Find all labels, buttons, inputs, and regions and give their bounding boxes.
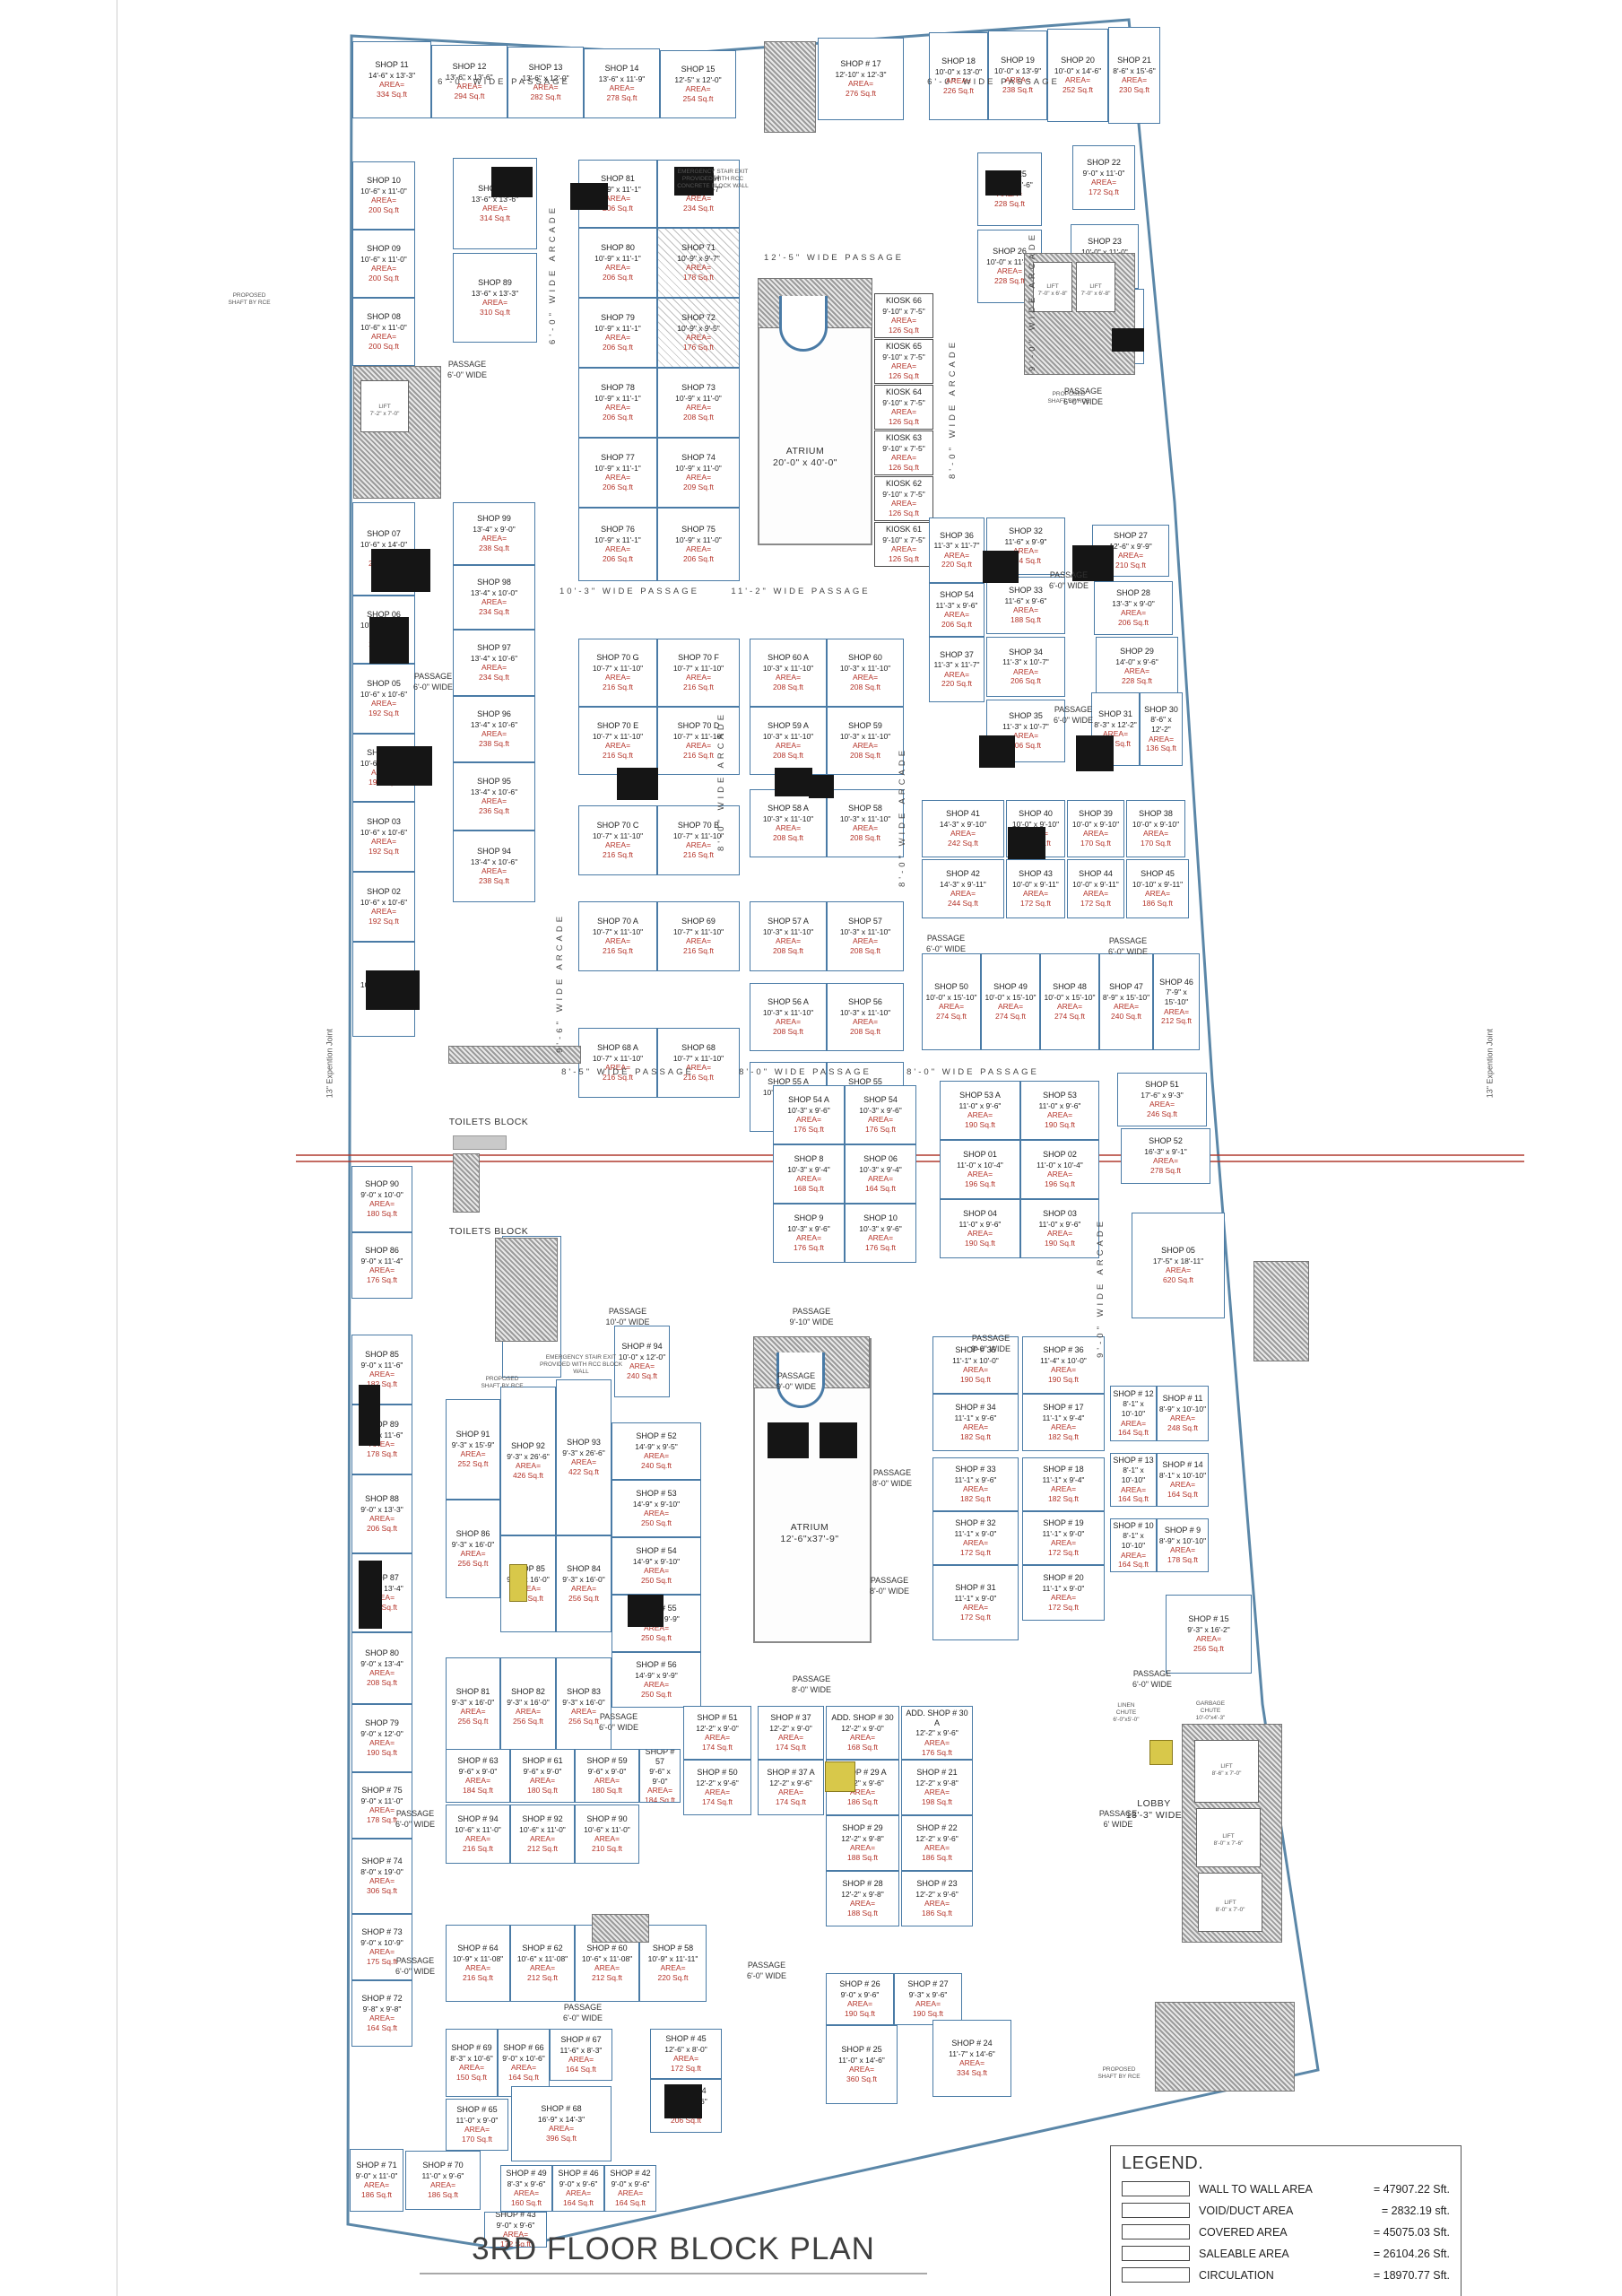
shop-number: SHOP 80 <box>601 243 635 253</box>
shop-cell: SHOP 10 10'-3" x 9'-6" AREA= 176 Sq.ft <box>845 1204 916 1263</box>
shop-number: SHOP 80 <box>365 1648 399 1658</box>
shop-dimensions: 11'-7" x 14'-6" <box>949 2049 995 2059</box>
shop-number: SHOP # 45 <box>665 2034 706 2044</box>
shop-cell: SHOP 78 10'-9" x 11'-1" AREA= 206 Sq.ft <box>578 368 657 438</box>
shop-area-value: 172 Sq.ft <box>960 1613 991 1622</box>
shop-area-value: 174 Sq.ft <box>776 1743 806 1752</box>
shop-cell: SHOP 76 10'-9" x 11'-1" AREA= 206 Sq.ft <box>578 508 657 581</box>
shop-area-label: AREA= <box>853 936 878 946</box>
shop-number: SHOP 34 <box>1009 648 1043 657</box>
shop-number: SHOP # 61 <box>522 1756 562 1766</box>
shop-number: SHOP 53 <box>1043 1091 1077 1100</box>
shop-area-label: AREA= <box>369 1514 395 1524</box>
shop-number: SHOP 83 <box>567 1687 601 1697</box>
structure-block <box>371 549 430 592</box>
structure-block <box>825 1761 855 1792</box>
shop-area-value: 182 Sq.ft <box>960 1432 991 1442</box>
shop-dimensions: 14'-3" x 9'-10" <box>940 820 986 830</box>
shop-cell: SHOP 84 9'-3" x 16'-0" AREA= 256 Sq.ft <box>556 1535 612 1632</box>
shop-area-value: 184 Sq.ft <box>645 1796 675 1803</box>
legend-row: CIRCULATION = 18970.77 Sft. <box>1122 2267 1450 2283</box>
shop-number: SHOP # 15 <box>1188 1614 1228 1624</box>
shop-area-label: AREA= <box>605 544 630 554</box>
shop-area-label: AREA= <box>571 1457 596 1467</box>
shop-dimensions: 13'-6" x 11'-9" <box>599 74 646 84</box>
shop-area-value: 208 Sq.ft <box>773 833 803 843</box>
shop-area-label: AREA= <box>1121 1485 1146 1495</box>
shop-area-value: 174 Sq.ft <box>702 1743 733 1752</box>
shop-area-value: 228 Sq.ft <box>1122 676 1152 686</box>
structure-block <box>617 768 658 800</box>
shop-area-label: AREA= <box>1170 1480 1195 1490</box>
shop-number: SHOP 39 <box>1079 809 1113 819</box>
shop-area-label: AREA= <box>685 84 710 94</box>
shop-area-value: 170 Sq.ft <box>1141 839 1171 848</box>
shop-number: SHOP 54 A <box>788 1095 829 1105</box>
shop-area-label: AREA= <box>605 333 630 343</box>
shop-number: SHOP 74 <box>681 453 716 463</box>
shop-dimensions: 10'-0" x 14'-6" <box>1054 66 1101 76</box>
shop-cell: SHOP 75 10'-9" x 11'-0" AREA= 206 Sq.ft <box>657 508 740 581</box>
passage-label: PASSAGE 6'-0" WIDE <box>747 1951 786 1981</box>
shop-dimensions: 12'-2" x 9'-6" <box>915 1834 958 1844</box>
shop-area-value: 172 Sq.ft <box>960 1548 991 1558</box>
shop-area-label: AREA= <box>891 499 916 509</box>
shop-number: SHOP 53 A <box>959 1091 1001 1100</box>
shop-dimensions: 10'-6" x 14'-0" <box>360 540 407 550</box>
shop-number: SHOP # 14 <box>1162 1460 1202 1470</box>
shop-area-value: 208 Sq.ft <box>773 683 803 692</box>
shop-number: SHOP 57 A <box>768 917 809 926</box>
shop-dimensions: 8'-1" x 10'-10" <box>1112 1399 1155 1418</box>
shop-dimensions: 11'-1" x 10'-0" <box>952 1356 999 1366</box>
shop-cell: SHOP 02 11'-0" x 10'-4" AREA= 196 Sq.ft <box>1020 1140 1099 1199</box>
shop-area-value: 209 Sq.ft <box>683 483 714 492</box>
shop-area-value: 164 Sq.ft <box>566 2065 596 2074</box>
shop-area-label: AREA= <box>1143 829 1168 839</box>
shop-dimensions: 9'-0" x 13'-4" <box>360 1659 403 1669</box>
shop-cell: SHOP 77 10'-9" x 11'-1" AREA= 206 Sq.ft <box>578 438 657 508</box>
shop-number: SHOP # 34 <box>955 1403 995 1413</box>
shop-number: SHOP 91 <box>456 1430 490 1439</box>
shop-area-value: 172 Sq.ft <box>1048 1603 1079 1613</box>
shop-dimensions: 11'-3" x 9'-6" <box>936 601 978 611</box>
shop-number: KIOSK 63 <box>886 433 922 443</box>
shop-area-label: AREA= <box>891 361 916 371</box>
shop-dimensions: 14'-9" x 9'-10" <box>633 1500 680 1509</box>
shop-cell: SHOP 99 13'-4" x 9'-0" AREA= 238 Sq.ft <box>453 502 535 565</box>
shop-cell: SHOP # 53 14'-9" x 9'-10" AREA= 250 Sq.f… <box>612 1480 701 1537</box>
shop-number: SHOP 82 <box>511 1687 545 1697</box>
shop-number: SHOP 52 <box>1149 1136 1183 1146</box>
shop-number: SHOP 70 G <box>596 653 638 663</box>
shop-dimensions: 9'-0" x 10'-6" <box>502 2054 545 2064</box>
shop-dimensions: 12'-2" x 9'-6" <box>769 1779 812 1788</box>
shop-number: SHOP 27 <box>1114 531 1148 541</box>
shop-area-label: AREA= <box>371 837 396 847</box>
shop-cell: SHOP # 65 11'-0" x 9'-0" AREA= 170 Sq.ft <box>446 2099 508 2151</box>
shop-dimensions: 10'-7" x 11'-10" <box>593 831 643 841</box>
shop-dimensions: 11'-1" x 9'-4" <box>1043 1475 1085 1485</box>
note-label: LIFT 7'-0" x 6'-8" <box>1081 276 1111 298</box>
shop-area-value: 168 Sq.ft <box>794 1184 824 1194</box>
shop-dimensions: 12'-10" x 12'-3" <box>835 70 886 80</box>
shop-cell: SHOP 58 A 10'-3" x 11'-10" AREA= 208 Sq.… <box>750 789 827 857</box>
shop-dimensions: 10'-3" x 9'-6" <box>859 1224 902 1234</box>
shop-number: SHOP # 29 <box>842 1823 882 1833</box>
shop-area-label: AREA= <box>1047 1229 1072 1239</box>
shop-cell: SHOP # 62 10'-6" x 11'-08" AREA= 212 Sq.… <box>510 1925 575 2002</box>
shop-area-label: AREA= <box>460 1549 485 1559</box>
shop-cell: SHOP 57 10'-3" x 11'-10" AREA= 208 Sq.ft <box>827 901 904 971</box>
shop-dimensions: 9'-8" x 9'-8" <box>363 2005 402 2014</box>
shop-dimensions: 9'-3" x 15'-9" <box>452 1440 495 1450</box>
shop-area-label: AREA= <box>481 597 507 607</box>
shop-number: SHOP # 49 <box>506 2169 546 2179</box>
shop-cell: SHOP # 49 8'-3" x 9'-6" AREA= 160 Sq.ft <box>500 2165 552 2212</box>
shop-area-value: 190 Sq.ft <box>1048 1375 1079 1385</box>
shop-cell: SHOP # 29 12'-2" x 9'-8" AREA= 188 Sq.ft <box>826 1815 899 1871</box>
shop-area-value: 248 Sq.ft <box>1167 1423 1198 1433</box>
shop-area-label: AREA= <box>1065 75 1090 85</box>
legend-label: VOID/DUCT AREA <box>1199 2205 1382 2217</box>
shop-cell: SHOP 9 10'-3" x 9'-6" AREA= 176 Sq.ft <box>773 1204 845 1263</box>
shop-dimensions: 17'-6" x 9'-3" <box>1141 1091 1184 1100</box>
shop-cell: SHOP # 71 9'-0" x 11'-0" AREA= 186 Sq.ft <box>350 2149 403 2212</box>
legend-label: WALL TO WALL AREA <box>1199 2183 1374 2196</box>
shop-number: SHOP 70 D <box>678 721 720 731</box>
structure-block <box>768 1422 809 1458</box>
shop-area-label: AREA= <box>1145 889 1170 899</box>
shop-number: SHOP # 42 <box>610 2169 650 2179</box>
shop-area-label: AREA= <box>369 1265 395 1275</box>
shop-area-label: AREA= <box>629 1361 655 1371</box>
shop-area-value: 216 Sq.ft <box>603 751 633 761</box>
structure-block <box>775 768 812 796</box>
shop-cell: SHOP 88 9'-0" x 13'-3" AREA= 206 Sq.ft <box>351 1474 412 1553</box>
shop-number: SHOP # 17 <box>840 59 880 69</box>
shop-number: SHOP # 46 <box>558 2169 598 2179</box>
shop-cell: SHOP # 92 10'-6" x 11'-0" AREA= 212 Sq.f… <box>510 1805 575 1864</box>
shop-area-value: 200 Sq.ft <box>369 205 399 215</box>
shop-dimensions: 10'-9" x 11'-1" <box>594 535 641 545</box>
shop-area-value: 208 Sq.ft <box>850 751 880 761</box>
shop-area-value: 314 Sq.ft <box>480 213 510 223</box>
shop-cell: SHOP 69 10'-7" x 11'-10" AREA= 216 Sq.ft <box>657 901 740 971</box>
arcade-label: 9'-0" WIDE ARCADE <box>1096 1218 1106 1358</box>
shop-area-value: 180 Sq.ft <box>527 1786 558 1796</box>
structure-block <box>570 183 608 210</box>
shop-area-label: AREA= <box>605 741 630 751</box>
shop-number: KIOSK 61 <box>886 525 922 535</box>
shop-dimensions: 17'-5" x 18'-11" <box>1153 1257 1203 1266</box>
shop-number: SHOP 15 <box>681 65 716 74</box>
shop-cell: SHOP # 56 14'-9" x 9'-9" AREA= 250 Sq.ft <box>612 1652 701 1708</box>
shop-area-value: 186 Sq.ft <box>428 2190 458 2200</box>
shop-area-label: AREA= <box>673 2054 698 2064</box>
shop-dimensions: 9'-0" x 11'-0" <box>1083 169 1125 178</box>
shop-number: SHOP # 27 <box>907 1979 948 1989</box>
structure-block <box>1008 827 1045 859</box>
shop-number: SHOP 05 <box>1161 1246 1195 1256</box>
shop-number: SHOP 06 <box>863 1154 898 1164</box>
shop-cell: SHOP 43 10'-0" x 9'-11" AREA= 172 Sq.ft <box>1006 859 1065 918</box>
shop-number: SHOP # 51 <box>697 1713 737 1723</box>
note-label: LIFT 8'-6" x 7'-0" <box>1212 1756 1242 1778</box>
shop-area-value: 210 Sq.ft <box>592 1844 622 1854</box>
shop-area-value: 208 Sq.ft <box>850 946 880 956</box>
shop-dimensions: 13'-6" x 13'-3" <box>472 289 518 299</box>
shop-dimensions: 9'-3" x 16'-0" <box>452 1698 495 1708</box>
passage-label: PASSAGE 6'-0" WIDE <box>395 1946 435 1977</box>
shop-area-value: 246 Sq.ft <box>1147 1109 1177 1119</box>
shop-number: SHOP # 67 <box>560 2035 601 2045</box>
shop-area-label: AREA= <box>850 1899 875 1909</box>
shop-cell: SHOP 28 13'-3" x 9'-0" AREA= 206 Sq.ft <box>1094 581 1173 635</box>
shop-area-label: AREA= <box>464 2125 490 2135</box>
shop-area-label: AREA= <box>566 2188 591 2198</box>
sheet-edge-line <box>117 0 117 2296</box>
shop-area-label: AREA= <box>778 1787 803 1797</box>
shop-cell: SHOP 59 A 10'-3" x 11'-10" AREA= 208 Sq.… <box>750 707 827 775</box>
shop-cell: SHOP # 20 11'-1" x 9'-0" AREA= 172 Sq.ft <box>1022 1565 1105 1621</box>
shop-area-label: AREA= <box>850 1733 875 1743</box>
passage-label: PASSAGE 6'-0" WIDE <box>395 1799 435 1830</box>
shop-cell: SHOP 70 A 10'-7" x 11'-10" AREA= 216 Sq.… <box>578 901 657 971</box>
passage-label: 12'-5" WIDE PASSAGE <box>764 253 904 264</box>
shop-cell: SHOP 09 10'-6" x 11'-0" AREA= 200 Sq.ft <box>352 230 415 298</box>
passage-label: PASSAGE 8'-0" WIDE <box>870 1566 909 1596</box>
shop-area-label: AREA= <box>647 1786 672 1796</box>
shop-cell: SHOP 71 10'-9" x 9'-7" AREA= 178 Sq.ft <box>657 228 740 298</box>
shop-area-value: 176 Sq.ft <box>865 1125 896 1135</box>
shop-number: SHOP 60 <box>848 653 882 663</box>
shop-area-value: 126 Sq.ft <box>889 417 919 427</box>
shop-dimensions: 13'-3" x 9'-0" <box>1112 599 1155 609</box>
shop-area-label: AREA= <box>549 2124 574 2134</box>
shop-area-value: 186 Sq.ft <box>361 2190 392 2200</box>
shop-cell: SHOP 39 10'-0" x 9'-10" AREA= 170 Sq.ft <box>1067 800 1124 857</box>
shop-dimensions: 8'-1" x 10'-10" <box>1159 1471 1206 1481</box>
shop-area-label: AREA= <box>605 936 630 946</box>
shop-number: SHOP # 52 <box>636 1431 676 1441</box>
shop-area-label: AREA= <box>868 1233 893 1243</box>
shop-dimensions: 12'-2" x 9'-8" <box>841 1834 884 1844</box>
shop-area-value: 200 Sq.ft <box>369 342 399 352</box>
passage-label: PASSAGE 6'-0" WIDE <box>1108 926 1148 957</box>
shop-area-value: 136 Sq.ft <box>1146 744 1176 753</box>
shop-number: SHOP # 75 <box>361 1786 402 1796</box>
shop-dimensions: 13'-4" x 10'-6" <box>471 654 517 664</box>
shop-area-value: 250 Sq.ft <box>641 1576 672 1586</box>
shop-number: SHOP 14 <box>605 64 639 74</box>
shop-number: SHOP 59 <box>848 721 882 731</box>
shop-area-label: AREA= <box>950 829 976 839</box>
shop-cell: SHOP 14 13'-6" x 11'-9" AREA= 278 Sq.ft <box>584 48 660 118</box>
shop-area-label: AREA= <box>1170 1545 1195 1555</box>
shop-area-label: AREA= <box>369 1668 395 1678</box>
structure-block <box>509 1564 527 1602</box>
shop-cell: SHOP 05 17'-5" x 18'-11" AREA= 620 Sq.ft <box>1132 1213 1225 1318</box>
shop-cell: SHOP 05 10'-6" x 10'-6" AREA= 192 Sq.ft <box>352 664 415 734</box>
shop-area-label: AREA= <box>660 1963 685 1973</box>
page-title: 3RD FLOOR BLOCK PLAN <box>420 2231 927 2274</box>
shop-cell: SHOP 95 13'-4" x 10'-6" AREA= 236 Sq.ft <box>453 762 535 831</box>
shop-cell: SHOP 36 11'-3" x 11'-7" AREA= 220 Sq.ft <box>929 517 984 583</box>
passage-label: PASSAGE 6'-0" WIDE <box>599 1702 638 1733</box>
shop-area-label: AREA= <box>853 1017 878 1027</box>
shop-dimensions: 11'-3" x 10'-7" <box>1002 657 1049 667</box>
shop-cell: SHOP 98 13'-4" x 10'-0" AREA= 234 Sq.ft <box>453 565 535 630</box>
legend-value: = 18970.77 Sft. <box>1374 2269 1450 2282</box>
shop-cell: SHOP 08 10'-6" x 11'-0" AREA= 200 Sq.ft <box>352 298 415 366</box>
shop-area-value: 190 Sq.ft <box>1045 1120 1075 1130</box>
shop-area-value: 208 Sq.ft <box>850 1027 880 1037</box>
legend-row: SALEABLE AREA = 26104.26 Sft. <box>1122 2246 1450 2261</box>
shop-area-label: AREA= <box>1023 889 1048 899</box>
shop-area-label: AREA= <box>963 1365 988 1375</box>
shop-area-label: AREA= <box>944 670 969 680</box>
shop-dimensions: 12'-2" x 9'-6" <box>915 1890 958 1900</box>
shop-area-label: AREA= <box>481 729 507 739</box>
shop-cell: SHOP 01 11'-0" x 10'-4" AREA= 196 Sq.ft <box>940 1140 1020 1199</box>
shop-area-value: 360 Sq.ft <box>846 2074 877 2084</box>
passage-label: PASSAGE 8'-0" WIDE <box>792 1665 831 1695</box>
shop-number: SHOP 79 <box>365 1718 399 1728</box>
shop-number: SHOP 35 <box>1009 711 1043 721</box>
shop-number: SHOP # 26 <box>839 1979 880 1989</box>
shop-dimensions: 11'-1" x 9'-6" <box>955 1475 997 1485</box>
shop-number: SHOP 40 <box>1019 809 1053 819</box>
shop-area-value: 206 Sq.ft <box>603 273 633 283</box>
shop-number: SHOP 03 <box>1043 1209 1077 1219</box>
shop-dimensions: 11'-0" x 10'-4" <box>1037 1161 1083 1170</box>
shop-area-label: AREA= <box>944 551 969 561</box>
shop-area-label: AREA= <box>1170 1413 1195 1423</box>
shop-number: SHOP 84 <box>567 1564 601 1574</box>
shop-cell: SHOP 90 9'-0" x 10'-0" AREA= 180 Sq.ft <box>351 1166 412 1232</box>
shop-number: SHOP 56 <box>848 997 882 1007</box>
structure-block <box>1076 735 1114 771</box>
shop-number: SHOP 49 <box>993 982 1028 992</box>
shop-number: SHOP 44 <box>1079 869 1113 879</box>
structure-block <box>359 1561 382 1629</box>
legend-label: COVERED AREA <box>1199 2226 1374 2239</box>
shop-dimensions: 10'-9" x 11'-0" <box>675 394 722 404</box>
shop-area-value: 334 Sq.ft <box>377 90 407 100</box>
shop-area-label: AREA= <box>369 1738 395 1748</box>
shop-dimensions: 10'-0" x 9'-10" <box>1132 820 1179 830</box>
shop-area-label: AREA= <box>371 196 396 205</box>
shop-number: SHOP 94 <box>477 847 511 857</box>
shop-number: SHOP 21 <box>1117 56 1151 65</box>
shop-number: SHOP 60 A <box>768 653 809 663</box>
shop-dimensions: 9'-3" x 26'-6" <box>562 1448 605 1458</box>
shop-area-label: AREA= <box>686 403 711 413</box>
structure-block <box>779 296 828 352</box>
shop-number: SHOP 88 <box>365 1494 399 1504</box>
structure-block <box>495 1238 558 1342</box>
shop-area-label: AREA= <box>465 1834 490 1844</box>
shop-area-label: AREA= <box>594 1963 620 1973</box>
structure-block <box>985 170 1021 196</box>
shop-area-value: 172 Sq.ft <box>671 2064 701 2074</box>
shop-cell: SHOP # 22 12'-2" x 9'-6" AREA= 186 Sq.ft <box>901 1815 973 1871</box>
shop-number: SHOP # 62 <box>522 1944 562 1953</box>
shop-area-value: 180 Sq.ft <box>367 1209 397 1219</box>
shop-area-value: 192 Sq.ft <box>369 917 399 926</box>
shop-cell: SHOP 06 10'-3" x 9'-4" AREA= 164 Sq.ft <box>845 1144 916 1204</box>
structure-block <box>1253 1261 1309 1361</box>
shop-area-value: 190 Sq.ft <box>845 2009 875 2019</box>
shop-area-label: AREA= <box>853 823 878 833</box>
shop-dimensions: 8'-9" x 15'-10" <box>1103 993 1149 1003</box>
shop-area-label: AREA= <box>514 2188 539 2198</box>
shop-area-value: 182 Sq.ft <box>1048 1432 1079 1442</box>
note-label: LIFT 8'-0" x 7'-6" <box>1214 1826 1244 1848</box>
shop-area-value: 256 Sq.ft <box>457 1717 488 1726</box>
shop-area-label: AREA= <box>686 263 711 273</box>
shop-number: SHOP # 72 <box>361 1994 402 2004</box>
shop-cell: SHOP # 32 11'-1" x 9'-0" AREA= 172 Sq.ft <box>932 1511 1019 1565</box>
shop-area-value: 178 Sq.ft <box>367 1449 397 1459</box>
shop-cell: SHOP 49 10'-0" x 15'-10" AREA= 274 Sq.ft <box>981 953 1040 1050</box>
shop-cell: SHOP # 24 11'-7" x 14'-6" AREA= 334 Sq.f… <box>932 2020 1011 2097</box>
shop-area-value: 190 Sq.ft <box>965 1120 995 1130</box>
legend-value: = 45075.03 Sft. <box>1374 2226 1450 2239</box>
shop-area-value: 244 Sq.ft <box>948 899 978 909</box>
note-label: PROPOSED SHAFT BY RCE <box>1097 2059 1140 2081</box>
shop-area-value: 216 Sq.ft <box>463 1973 493 1983</box>
shop-cell: SHOP 03 10'-6" x 10'-6" AREA= 192 Sq.ft <box>352 802 415 872</box>
shop-dimensions: 8'-1" x 10'-10" <box>1112 1465 1155 1484</box>
shop-area-label: AREA= <box>460 1449 485 1459</box>
shop-dimensions: 14'-9" x 9'-9" <box>635 1671 678 1681</box>
shop-area-label: AREA= <box>1149 735 1174 744</box>
shop-area-value: 212 Sq.ft <box>527 1844 558 1854</box>
shop-area-value: 230 Sq.ft <box>1119 85 1149 95</box>
shop-area-value: 310 Sq.ft <box>480 308 510 317</box>
shop-area-value: 240 Sq.ft <box>641 1461 672 1471</box>
shop-area-value: 206 Sq.ft <box>1010 676 1041 686</box>
shop-cell: SHOP 8 10'-3" x 9'-4" AREA= 168 Sq.ft <box>773 1144 845 1204</box>
shop-area-value: 175 Sq.ft <box>367 1957 397 1967</box>
shop-cell: SHOP 70 E 10'-7" x 11'-10" AREA= 216 Sq.… <box>578 707 657 775</box>
structure-block <box>453 1153 480 1213</box>
shop-number: SHOP 70 F <box>678 653 719 663</box>
structure-block <box>453 1135 507 1150</box>
shop-dimensions: 10'-7" x 11'-10" <box>593 732 643 742</box>
shop-area-value: 172 Sq.ft <box>1048 1548 1079 1558</box>
shop-number: SHOP 42 <box>946 869 980 879</box>
shop-number: SHOP # 73 <box>361 1927 402 1937</box>
shop-area-value: 176 Sq.ft <box>865 1243 896 1253</box>
shop-cell: SHOP # 68 16'-9" x 14'-3" AREA= 396 Sq.f… <box>511 2086 612 2161</box>
shop-cell: SHOP 68 A 10'-7" x 11'-10" AREA= 216 Sq.… <box>578 1028 657 1098</box>
shop-dimensions: 12'-2" x 9'-6" <box>696 1779 739 1788</box>
shop-area-label: AREA= <box>571 1584 596 1594</box>
shop-number: SHOP 98 <box>477 578 511 587</box>
shop-area-label: AREA= <box>1153 1156 1178 1166</box>
shop-area-label: AREA= <box>369 1947 395 1957</box>
shop-dimensions: 10'-3" x 11'-10" <box>840 1008 890 1018</box>
shop-area-value: 208 Sq.ft <box>773 946 803 956</box>
shop-dimensions: 12'-2" x 9'-0" <box>841 1724 884 1734</box>
shop-area-label: AREA= <box>939 1002 964 1012</box>
shop-number: SHOP 58 A <box>768 804 809 813</box>
shop-cell: SHOP # 74 8'-0" x 19'-0" AREA= 306 Sq.ft <box>351 1839 412 1914</box>
shop-cell: SHOP # 26 9'-0" x 9'-6" AREA= 190 Sq.ft <box>826 1973 894 2025</box>
